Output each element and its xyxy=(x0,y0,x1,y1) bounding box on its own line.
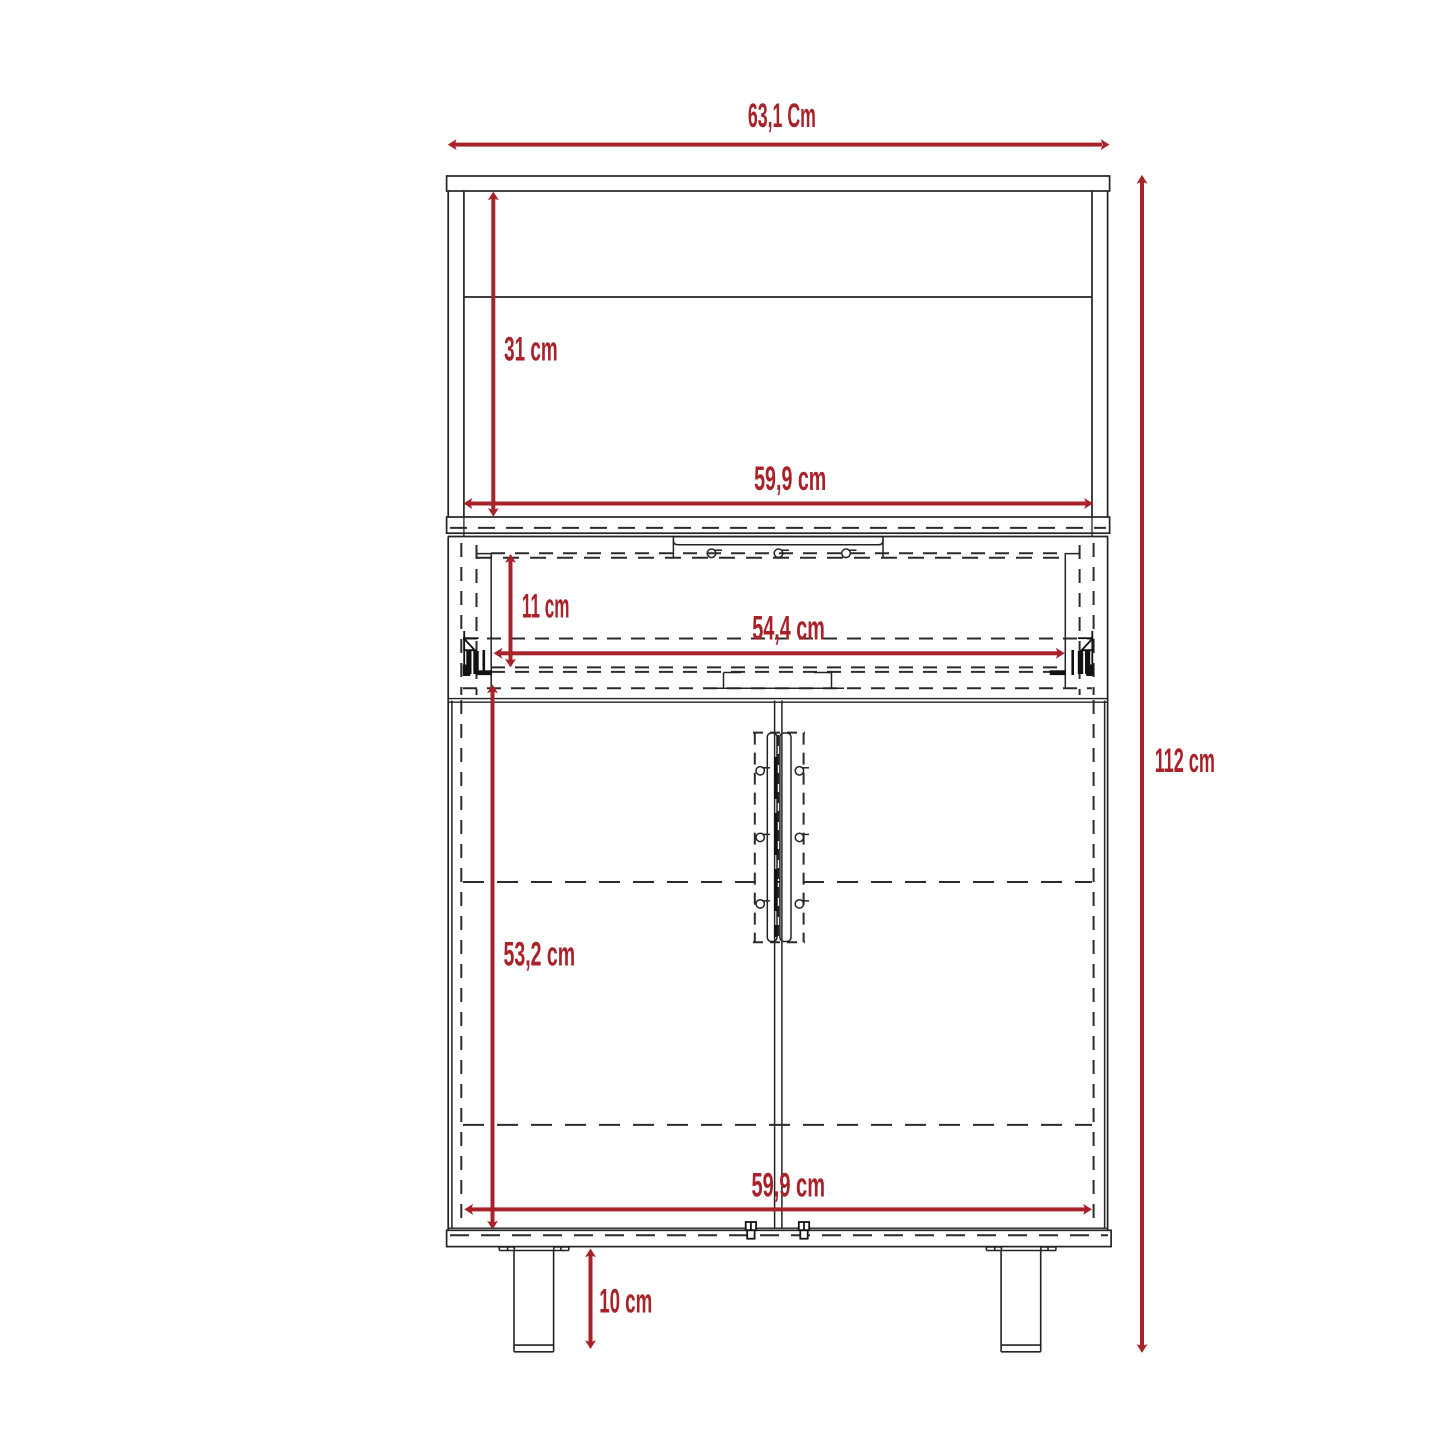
svg-text:59,9 cm: 59,9 cm xyxy=(752,1167,826,1205)
svg-text:11 cm: 11 cm xyxy=(522,587,570,625)
svg-text:31 cm: 31 cm xyxy=(504,331,557,369)
svg-text:10 cm: 10 cm xyxy=(599,1283,652,1321)
svg-text:59,9 cm: 59,9 cm xyxy=(754,460,826,498)
svg-text:112 cm: 112 cm xyxy=(1155,742,1215,780)
svg-text:53,2 cm: 53,2 cm xyxy=(504,935,576,973)
svg-text:63,1 Cm: 63,1 Cm xyxy=(748,97,816,135)
svg-text:54,4 cm: 54,4 cm xyxy=(752,609,825,647)
